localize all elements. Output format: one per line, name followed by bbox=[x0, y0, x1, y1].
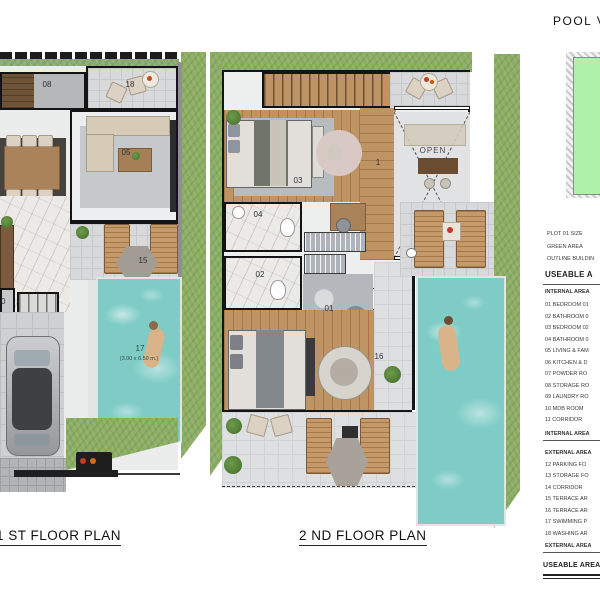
bbq-coals bbox=[80, 458, 86, 464]
grill-box bbox=[342, 426, 358, 438]
plant bbox=[1, 216, 13, 228]
car-roof bbox=[12, 368, 52, 430]
food-plate bbox=[147, 76, 152, 81]
external-total-row: EXTERNAL AREA bbox=[545, 543, 591, 549]
outline-building-row: OUTLINE BUILDIN bbox=[547, 256, 594, 263]
sofa-chaise bbox=[86, 134, 114, 172]
legend-item: 12 PARKING FO bbox=[545, 462, 586, 469]
pool-number-label: 17 bbox=[130, 344, 150, 354]
legend-item: 04 BATHROOM 0 bbox=[545, 337, 589, 344]
window-band bbox=[394, 106, 470, 110]
legend-item: 14 CORRIDOR bbox=[545, 485, 583, 492]
swimming-pool-below bbox=[416, 276, 506, 526]
fence-top bbox=[0, 52, 179, 59]
second-floor-caption: 2 ND FLOOR PLAN bbox=[299, 528, 427, 546]
legend-item: 16 TERRACE AR bbox=[545, 508, 588, 515]
stool-below bbox=[424, 178, 435, 189]
food-plate bbox=[430, 80, 434, 84]
fence-bottom-line bbox=[118, 473, 180, 475]
plant bbox=[226, 418, 242, 434]
external-area-header: EXTERNAL AREA bbox=[545, 450, 591, 456]
storage-wood-floor bbox=[2, 74, 34, 108]
washing-area-label: 18 bbox=[118, 80, 142, 90]
legend-item: 01 BEDROOM 01 bbox=[545, 302, 589, 309]
legend-item: 13 STORAGE FO bbox=[545, 473, 589, 480]
grass-strip-left bbox=[210, 52, 222, 476]
cat bbox=[406, 248, 417, 258]
legend-item: 03 BEDROOM 02 bbox=[545, 325, 589, 332]
dining-chair bbox=[22, 135, 37, 147]
sheet-title: POOL V bbox=[553, 14, 600, 28]
tv-console bbox=[170, 120, 176, 212]
stool-below bbox=[440, 178, 451, 189]
plant bbox=[226, 110, 241, 125]
corridor-label: 1 bbox=[372, 158, 384, 168]
food-plate bbox=[424, 77, 429, 82]
bedroom-02-label: 03 bbox=[288, 176, 308, 186]
mdb-room-label: 10 bbox=[0, 297, 8, 307]
terrace-label: 15 bbox=[132, 256, 154, 266]
terrace-table bbox=[420, 73, 438, 91]
legend-item: 15 TERRACE AR bbox=[545, 496, 588, 503]
dining-table bbox=[4, 146, 60, 190]
sink bbox=[232, 206, 245, 219]
internal-area-header: INTERNAL AREA bbox=[545, 289, 590, 295]
first-floor-caption: 1 ST FLOOR PLAN bbox=[0, 528, 121, 546]
plant bbox=[224, 456, 242, 474]
key-plan-plot bbox=[573, 57, 600, 195]
bed-pillow bbox=[228, 140, 240, 153]
second-floor-plan: DN 1 03 04 02 OPEN 01 bbox=[208, 48, 520, 528]
living-room-label: 05 bbox=[115, 148, 137, 158]
toilet bbox=[280, 218, 295, 237]
internal-total-row: INTERNAL AREA bbox=[545, 431, 590, 437]
sofa bbox=[86, 116, 170, 136]
grass-strip-right bbox=[181, 52, 206, 467]
pool-size-label: (3.00 x 6.50 m.) bbox=[114, 356, 164, 363]
legend-item: 06 KITCHEN & D bbox=[545, 360, 587, 367]
terrace-balcony-label: 16 bbox=[370, 352, 388, 362]
grand-total-rule-2 bbox=[543, 578, 600, 579]
header-rule bbox=[543, 284, 600, 285]
grass-strip-top bbox=[220, 52, 472, 72]
useable-total-row: USEABLE AREA T bbox=[543, 562, 600, 569]
toilet bbox=[270, 280, 286, 300]
bathroom-02-label: 04 bbox=[248, 210, 268, 220]
legend-item: 02 BATHROOM 0 bbox=[545, 314, 589, 321]
first-floor-plan: 08 18 05 10 UP 15 17 (3.00 x 6.50 m.) bbox=[0, 50, 206, 495]
east-wall bbox=[412, 260, 415, 410]
open-label: OPEN bbox=[410, 146, 456, 156]
plot-size-row: PLOT 01 SIZE bbox=[547, 231, 583, 238]
legend-item: 08 STORAGE RO bbox=[545, 383, 589, 390]
bed-blanket bbox=[256, 330, 284, 408]
stairs-down bbox=[262, 72, 394, 108]
desk-chair bbox=[336, 218, 351, 233]
dining-chair bbox=[6, 135, 21, 147]
total-rule bbox=[543, 440, 600, 441]
bathroom-01-label: 02 bbox=[250, 270, 270, 280]
bed-pillow bbox=[230, 354, 243, 369]
sun-lounger bbox=[414, 210, 444, 268]
bed-pillow bbox=[228, 124, 240, 137]
sofa-below bbox=[404, 124, 466, 146]
legend-item: 07 POWDER RO bbox=[545, 371, 587, 378]
legend-item: 09 LAUNDRY RO bbox=[545, 394, 589, 401]
bed-bench bbox=[306, 338, 315, 396]
drawing-sheet: { "sheet": { "title": "POOL V" }, "plan1… bbox=[0, 0, 600, 600]
vanity-stool bbox=[328, 144, 341, 161]
storage-room-label: 08 bbox=[35, 80, 59, 90]
legend-item: 18 WASHING AR bbox=[545, 531, 588, 538]
car-windshield bbox=[14, 350, 50, 366]
bed-pillow bbox=[230, 335, 243, 350]
grand-total-rule-1 bbox=[543, 574, 600, 576]
fence-bottom bbox=[14, 470, 118, 477]
balcony-plant bbox=[384, 366, 401, 383]
terrace-plant bbox=[76, 226, 89, 239]
wardrobe bbox=[304, 254, 346, 274]
car-rear-window bbox=[14, 434, 50, 446]
pool-float-head bbox=[149, 321, 158, 330]
legend-item: 10 MDB ROOM bbox=[545, 406, 584, 413]
total-rule bbox=[543, 552, 600, 553]
terrace-balcony bbox=[374, 262, 412, 410]
bedroom-01-label: 01 bbox=[320, 304, 338, 314]
round-lounge-cushion bbox=[330, 358, 358, 386]
legend-item: 05 LIVING & FAM bbox=[545, 348, 589, 355]
area-legend: PLOT 01 SIZE GREEN AREA OUTLINE BUILDIN … bbox=[543, 228, 600, 588]
kitchen-island-below bbox=[418, 158, 458, 174]
pool-float-head bbox=[444, 316, 453, 325]
flower-pot bbox=[447, 227, 453, 233]
bed-throw bbox=[270, 120, 286, 186]
green-area-row: GREEN AREA bbox=[547, 244, 583, 251]
legend-item: 11 CORRIDOR bbox=[545, 417, 582, 424]
legend-item: 17 SWIMMING P bbox=[545, 519, 587, 526]
useable-area-header: USEABLE A bbox=[545, 270, 593, 279]
dining-chair bbox=[38, 135, 53, 147]
wardrobe bbox=[304, 232, 366, 252]
bathroom-01 bbox=[224, 256, 302, 310]
bbq-food bbox=[90, 458, 96, 464]
